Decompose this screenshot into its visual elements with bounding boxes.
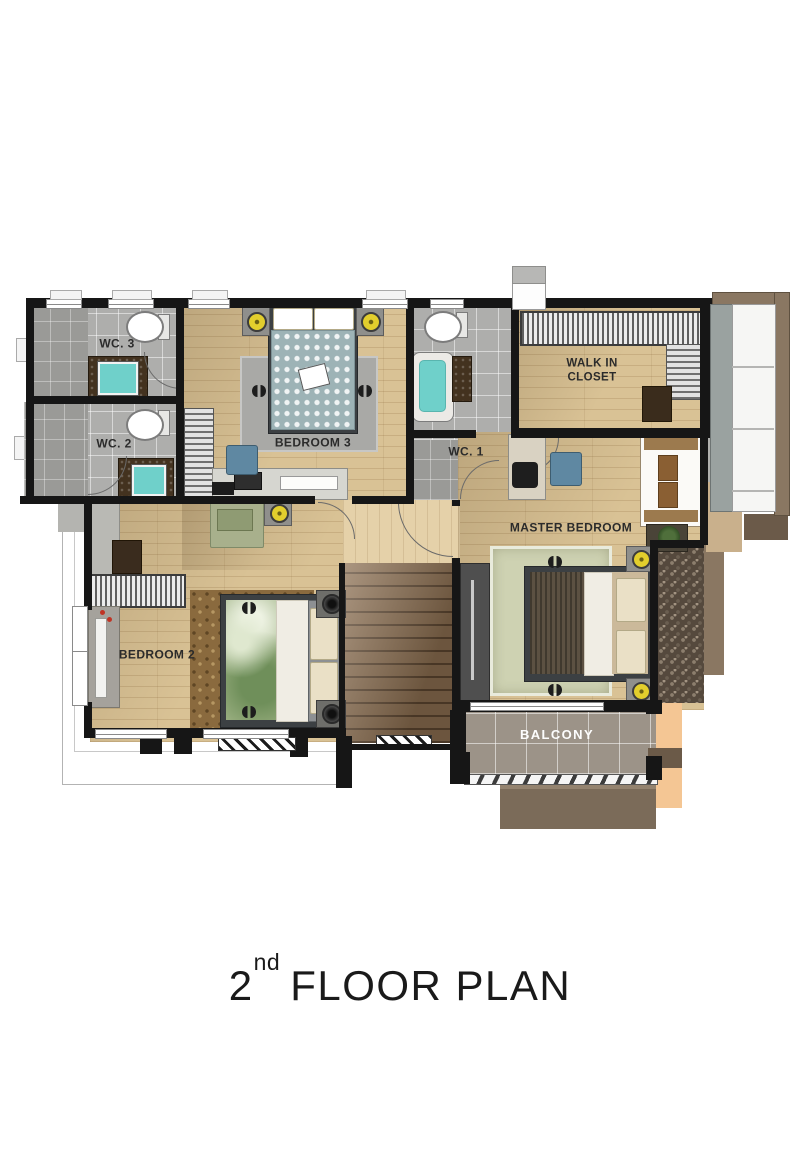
master-lounge-chair — [550, 452, 582, 486]
wc2-sink — [132, 465, 166, 496]
wall-balcony-corner — [450, 752, 470, 784]
bay-glass-divider — [732, 366, 774, 368]
title-text: FLOOR PLAN — [290, 962, 571, 1009]
floor-plan-page: WC. 3 WC. 2 BEDROOM 3 WC. 1 WALK IN CLOS… — [0, 0, 800, 1161]
wall-wc-east — [176, 298, 184, 504]
dresser-wood-bottom — [644, 510, 698, 522]
red-indicator — [100, 610, 105, 615]
closet-drawer-unit — [642, 386, 672, 422]
bedroom2-wardrobe — [88, 574, 186, 608]
pebble-planter-strip — [658, 548, 704, 703]
bedroom2-chest — [112, 540, 142, 574]
wc1-toilet — [424, 311, 462, 343]
dresser-cushion — [658, 482, 678, 508]
wall-master-west-a — [452, 500, 460, 506]
wall-master-east-jog — [650, 540, 704, 548]
slippers — [242, 602, 256, 614]
wc1-mosaic-wall — [452, 356, 472, 402]
bay-window-right-frame — [774, 292, 790, 516]
ironing-board — [95, 618, 107, 698]
bedroom2-sheet — [276, 600, 310, 722]
bedroom3-speaker-left-icon — [247, 312, 267, 332]
tv-icon — [471, 580, 474, 680]
master-pillow — [616, 630, 646, 674]
title-number: 2 — [229, 962, 254, 1009]
closet-hanging-rail — [520, 311, 706, 346]
slippers — [242, 706, 256, 718]
desk-printer — [212, 482, 234, 495]
bedroom3-label: BEDROOM 3 — [275, 436, 351, 451]
wall-master-west-b — [452, 558, 460, 712]
slippers — [358, 385, 372, 397]
wall-bedroom3-east — [406, 298, 414, 504]
window-south — [95, 729, 167, 739]
wall-closet-south — [511, 428, 711, 438]
pier-column — [336, 736, 352, 788]
slippers — [548, 556, 562, 568]
master-bed-sheet — [584, 572, 614, 676]
wall-stair-west — [339, 563, 345, 743]
master-bedroom-label: MASTER BEDROOM — [510, 521, 632, 536]
window-sill — [112, 290, 152, 300]
bedroom2-duvet — [226, 600, 276, 720]
bay-window-mullion — [710, 304, 734, 512]
bedroom3-speaker-right-icon — [361, 312, 381, 332]
title-ordinal: nd — [254, 949, 281, 975]
desk-papers — [280, 476, 338, 490]
bay-window-glass — [732, 304, 776, 512]
window — [188, 299, 230, 309]
wall-master-east-lower — [650, 540, 658, 712]
walk-in-closet-label: WALK IN CLOSET — [566, 357, 617, 386]
wall-master-east-upper — [700, 432, 708, 545]
balcony-railing — [464, 774, 658, 785]
window-sill — [366, 290, 406, 300]
window-sill — [192, 290, 228, 300]
exterior-band — [704, 545, 724, 675]
bedroom3-pillow — [273, 308, 313, 330]
wall-wc-divider — [26, 396, 182, 404]
balcony-label: BALCONY — [520, 727, 594, 743]
armchair-cushion — [217, 509, 253, 531]
window-sill — [50, 290, 82, 300]
hall-speaker-icon — [270, 504, 289, 523]
balcony-roof — [500, 784, 656, 829]
master-desk-chair — [512, 462, 538, 488]
master-duvet — [530, 572, 584, 674]
bedroom3-pillow — [314, 308, 354, 330]
bay-window-base — [744, 514, 788, 540]
wc2-label: WC. 2 — [96, 437, 131, 452]
wc1-label: WC. 1 — [448, 445, 483, 460]
bedroom3-chair — [226, 445, 258, 475]
chimney-cap — [512, 266, 546, 284]
wall-bedroom3-south-a — [182, 496, 315, 504]
wall-balcony-east-b — [646, 756, 662, 780]
master-speaker-icon — [632, 682, 651, 701]
red-indicator — [107, 617, 112, 622]
wall-stair-south — [345, 744, 455, 750]
master-pillow — [616, 578, 646, 622]
wc3-sink — [98, 362, 138, 395]
dresser-wood-top — [644, 438, 698, 450]
wall-wc1-east — [511, 298, 519, 438]
wall-bedroom2-west-a — [84, 500, 92, 610]
master-tv-wall — [460, 563, 490, 701]
bedroom2-label: BEDROOM 2 — [119, 648, 195, 663]
window — [108, 299, 154, 309]
wall-bedroom3-south-b — [352, 496, 414, 504]
master-speaker-icon — [632, 550, 651, 569]
staircase — [345, 563, 453, 743]
dresser-cushion — [658, 455, 678, 481]
wall-balcony-east-a — [646, 700, 662, 714]
window-south — [203, 729, 289, 739]
bedroom2-west-window — [72, 606, 88, 706]
bedroom3-wardrobe — [184, 408, 214, 500]
window — [362, 299, 408, 309]
wall-wc2-south — [20, 496, 184, 504]
wc2-toilet — [126, 409, 164, 441]
bay-glass-divider — [732, 490, 774, 492]
slippers — [252, 385, 266, 397]
page-title: 2ndFLOOR PLAN — [0, 962, 800, 1010]
wc3-label: WC. 3 — [99, 337, 134, 352]
pier-column — [174, 736, 192, 754]
wc1-bathtub-water — [419, 360, 446, 412]
bay-glass-divider — [732, 428, 774, 430]
slippers — [548, 684, 562, 696]
window — [46, 299, 82, 309]
window — [430, 299, 464, 309]
wall-wc1-mid — [410, 430, 476, 438]
wall-balcony-west — [450, 710, 466, 754]
entry-roof-hatch — [218, 737, 296, 751]
balcony-sliding-door — [470, 702, 604, 711]
wc3-shower-floor — [30, 303, 88, 402]
